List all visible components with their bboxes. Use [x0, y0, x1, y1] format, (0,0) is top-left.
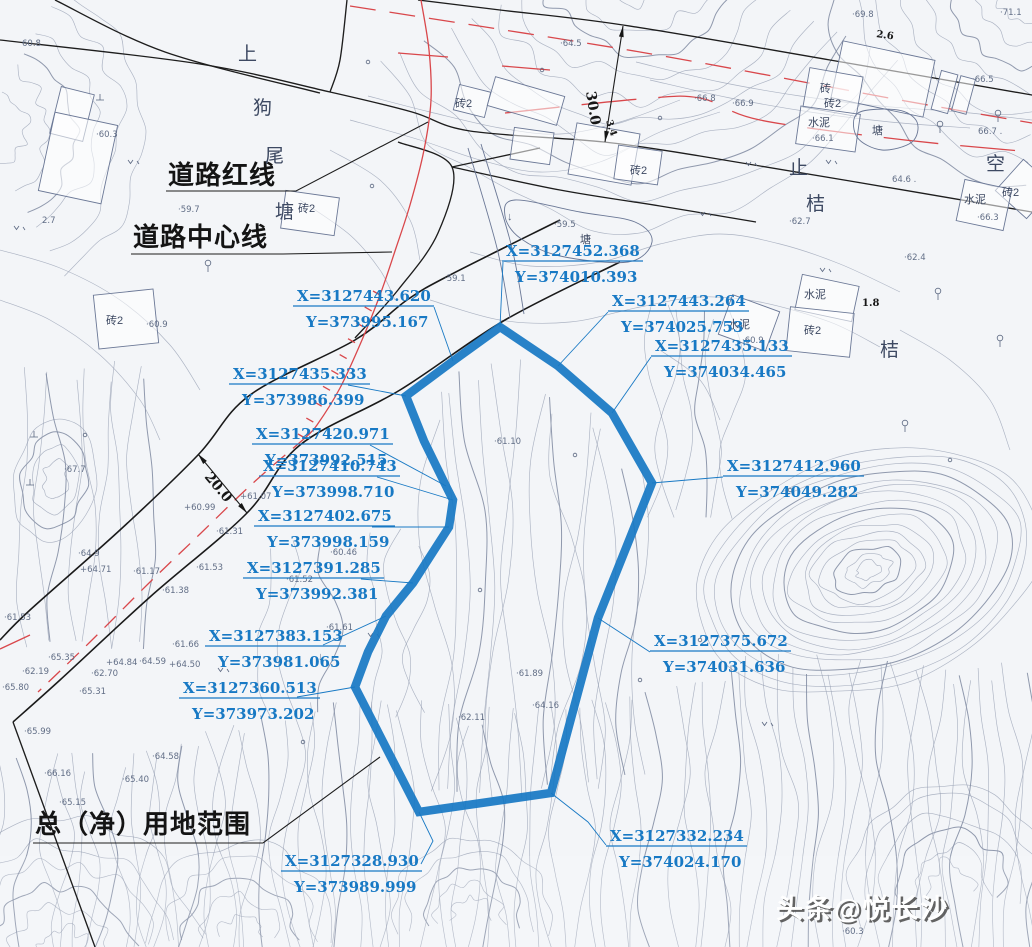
- spot-elevation: +64.84: [106, 658, 137, 668]
- land-type-label: 桔: [806, 193, 825, 215]
- spot-elevation: 2.7: [42, 216, 56, 226]
- land-parcel-boundary: [355, 327, 652, 812]
- coordinate-y-value: Y=374031.636: [662, 658, 785, 676]
- spot-elevation: +64.71: [80, 565, 111, 575]
- place-name-char: 尾: [265, 146, 284, 167]
- spot-elevation: ·61.10: [494, 437, 521, 447]
- building-outline: [93, 289, 158, 349]
- contour-line: [98, 382, 111, 648]
- grass-icon: [14, 226, 25, 230]
- spot-elevation: ·66.16: [44, 769, 71, 779]
- place-name-char: 狗: [253, 97, 272, 119]
- contour-ring: [13, 419, 97, 542]
- spot-elevation: ·61.38: [162, 586, 189, 596]
- coordinate-x-value: X=3127328.930: [285, 852, 419, 870]
- tree-icon: [997, 335, 1003, 341]
- spot-elevation: ·66.9: [732, 99, 754, 109]
- spot-elevation: ·61.66: [172, 640, 199, 650]
- grass-icon: [762, 722, 773, 726]
- dimension-arrow: [619, 26, 625, 38]
- feature-label: 砖2: [106, 313, 123, 327]
- coordinate-leader-line: [434, 307, 453, 361]
- parcel-boundary-polygon: [355, 327, 652, 812]
- land-type-label: 空: [986, 153, 1005, 175]
- coordinate-x-value: X=3127443.264: [612, 292, 746, 310]
- coordinate-x-value: X=3127360.513: [183, 679, 317, 697]
- tree-icon: [995, 110, 1001, 116]
- feature-label: 砖2: [298, 201, 315, 215]
- dimension-text: 1.8: [862, 298, 879, 309]
- tree-icon: [205, 260, 211, 266]
- road-boundary-line: [330, 0, 347, 92]
- spot-elevation: ·62.7: [789, 217, 811, 227]
- road-boundary-line: [355, 142, 454, 338]
- land-use-scope-label: 总（净）用地范围: [35, 809, 251, 839]
- place-name-char: 塘: [275, 201, 294, 223]
- contour-line: [46, 373, 66, 641]
- spot-elevation: ·61.89: [516, 669, 543, 679]
- coordinate-leader-line: [500, 262, 503, 327]
- map-symbols: ↓↓: [14, 60, 1003, 744]
- coordinate-y-value: Y=373992.381: [255, 585, 378, 603]
- slope-hatch-tick: [340, 355, 347, 359]
- coordinate-x-value: X=3127435.333: [233, 365, 367, 383]
- spot-elevation: ·62.70: [91, 669, 118, 679]
- contour-line: [660, 350, 720, 420]
- coordinate-x-value: X=3127435.133: [655, 337, 789, 355]
- path-outline: [468, 148, 510, 318]
- dimension-text: 2.6: [876, 29, 895, 42]
- spot-elevation: +61.07: [240, 492, 271, 502]
- coordinate-y-value: Y=374024.170: [618, 853, 741, 871]
- feature-label: 水泥: [804, 288, 826, 301]
- spot-elevation: ·66.1: [812, 134, 834, 144]
- spot-elevation: ·59.1: [444, 274, 466, 284]
- watermark-text: 头条@悦长沙: [776, 894, 949, 924]
- contour-line: [68, 380, 82, 641]
- survey-mark-icon: [96, 94, 104, 100]
- dimension-text: 30.0: [582, 90, 603, 126]
- spot-elevation: ·60.3: [96, 130, 118, 140]
- spot-elevation: ·65.40: [122, 775, 149, 785]
- contour-line: [965, 0, 1032, 46]
- spot-elevation: ·65.80: [2, 683, 29, 693]
- coordinate-y-value: Y=374025.753: [620, 318, 743, 336]
- coordinate-x-value: X=3127332.234: [610, 827, 744, 845]
- contour-line: [127, 366, 142, 642]
- coordinate-y-value: Y=373989.999: [293, 878, 416, 896]
- contour-line: [439, 392, 457, 791]
- dot-mark: [370, 184, 374, 188]
- spot-elevation: ·67.7: [64, 465, 86, 475]
- dot-mark: [478, 588, 482, 592]
- coordinate-x-value: X=3127375.672: [654, 632, 788, 650]
- slope-hatch-tick: [365, 307, 372, 311]
- topographic-site-plan: ↓↓ 30.020.03.41.82.6 60.8·60.3·59.72.7·6…: [0, 0, 1032, 947]
- grass-icon: [820, 268, 831, 272]
- watermark: 头条@悦长沙 头条@悦长沙: [776, 894, 952, 926]
- building-outline: [510, 127, 554, 164]
- land-type-label: 止: [789, 157, 808, 179]
- contour-line: [485, 364, 513, 799]
- down-arrow-icon: ↓: [507, 211, 513, 223]
- contour-line: [900, 330, 1010, 450]
- dot-mark: [366, 60, 370, 64]
- land-type-label: 桔: [880, 339, 899, 361]
- coordinate-leader-line: [551, 793, 606, 845]
- coordinate-x-value: X=3127420.971: [256, 425, 390, 443]
- coordinate-x-value: X=3127452.368: [506, 242, 640, 260]
- spot-elevation: ·66.3: [977, 213, 999, 223]
- contour-line: [111, 361, 121, 649]
- contour-line: [543, 397, 561, 785]
- spot-elevation: ·64.9: [78, 549, 100, 559]
- spot-elevation: ·62.11: [458, 713, 485, 723]
- feature-label: 砖2: [824, 96, 841, 110]
- feature-label: 砖2: [804, 323, 821, 337]
- contour-line: [82, 369, 96, 642]
- coordinate-y-value: Y=374034.465: [663, 363, 786, 381]
- coordinate-x-value: X=3127383.153: [209, 627, 343, 645]
- contour-line: [16, 367, 27, 647]
- pond-outline: [853, 109, 918, 150]
- spot-elevation: ·62.19: [22, 667, 49, 677]
- contour-line: [143, 379, 155, 649]
- spot-elevation: ·66.8: [694, 94, 716, 104]
- contour-ring: [856, 559, 882, 580]
- coordinate-y-value: Y=373998.710: [271, 483, 394, 501]
- coordinate-x-value: X=3127402.675: [258, 507, 392, 525]
- road-center-line-leader: [131, 252, 392, 254]
- spot-elevation: 64.6 .: [892, 175, 916, 185]
- coordinate-leader-line: [598, 618, 650, 652]
- spot-elevation: ·64.5: [560, 39, 582, 49]
- feature-label: 砖: [820, 81, 831, 95]
- tree-icon: [902, 420, 908, 426]
- buildings: [38, 41, 1032, 357]
- place-name-char: 上: [238, 43, 257, 65]
- building-outline: [38, 112, 117, 204]
- coordinate-y-value: Y=373998.159: [266, 533, 389, 551]
- coordinate-y-value: Y=373981.065: [217, 653, 340, 671]
- spot-elevation: ·64.16: [532, 701, 559, 711]
- contour-ring: [33, 445, 80, 515]
- spot-elevation: ·71.1: [1000, 8, 1022, 18]
- spot-elevation: ·59.7: [178, 205, 200, 215]
- spot-elevation: ·64.58: [152, 752, 179, 762]
- spot-elevation: +64.50: [169, 660, 200, 670]
- building-outline: [487, 77, 564, 126]
- spot-elevation: 66.7 .: [978, 127, 1002, 137]
- grass-icon: [826, 160, 837, 164]
- spot-elevation: ·65.15: [59, 798, 86, 808]
- spot-elevation: ·65.35: [48, 653, 75, 663]
- spot-elevation: ·59.5: [554, 220, 576, 230]
- feature-label: 水泥: [964, 193, 986, 206]
- dot-mark: [573, 453, 577, 457]
- contour-ring: [809, 531, 926, 607]
- building-outline: [796, 106, 861, 152]
- feature-label: 水泥: [808, 116, 830, 129]
- dot-mark: [948, 458, 952, 462]
- spot-elevation: ·62.4: [904, 253, 926, 263]
- tree-icon: [935, 288, 941, 294]
- contour-line: [0, 92, 31, 163]
- contour-line: [582, 0, 698, 9]
- contour-line: [529, 394, 555, 789]
- contour-line: [501, 360, 522, 799]
- coordinate-y-value: Y=374010.393: [514, 268, 637, 286]
- spot-elevation: ·60.3: [842, 927, 864, 937]
- spot-elevation: ·61.17: [133, 567, 160, 577]
- coordinate-leader-line: [361, 579, 413, 583]
- spot-elevation: ·61.31: [216, 527, 243, 537]
- road-red-line-label: 道路红线: [168, 160, 276, 190]
- contour-line: [479, 380, 495, 793]
- dot-mark: [658, 116, 662, 120]
- spot-elevation: ·65.99: [24, 727, 51, 737]
- coordinate-leader-line: [612, 357, 651, 413]
- coordinate-x-value: X=3127410.743: [263, 457, 397, 475]
- coordinate-y-value: Y=373995.167: [305, 313, 428, 331]
- coordinate-y-value: Y=373986.399: [241, 391, 364, 409]
- slope-hatch-tick: [323, 386, 330, 390]
- coordinate-y-value: Y=373973.202: [191, 705, 314, 723]
- road-center-line-label: 道路中心线: [133, 222, 268, 252]
- spot-elevation: ·69.8: [852, 10, 874, 20]
- coordinate-x-value: X=3127391.285: [247, 559, 381, 577]
- contour-line: [418, 420, 455, 791]
- feature-labels: 塘塘砖砖2砖2砖2砖2砖2砖2水泥水泥水泥水泥砖2: [106, 81, 1019, 337]
- coordinate-x-value: X=3127412.960: [727, 457, 861, 475]
- spot-elevation: ·61.53: [196, 563, 223, 573]
- spot-elevation: ·61.53: [4, 613, 31, 623]
- map-stage: ↓↓ 30.020.03.41.82.6 60.8·60.3·59.72.7·6…: [0, 0, 1032, 947]
- feature-label: 砖2: [1002, 185, 1019, 199]
- dimension-text: 20.0: [201, 469, 235, 506]
- contour-line: [569, 0, 714, 31]
- spot-elevation: 60.8: [22, 39, 41, 49]
- contour-line: [383, 529, 410, 718]
- feature-label: 砖2: [630, 163, 647, 177]
- slope-hatch-tick: [306, 418, 313, 422]
- dot-mark: [638, 678, 642, 682]
- feature-label: 塘: [872, 123, 883, 137]
- coordinate-y-value: Y=374049.282: [735, 483, 858, 501]
- spot-elevation: ·66.5: [972, 75, 994, 85]
- spot-elevation: ·64.59: [139, 657, 166, 667]
- feature-label: 砖2: [455, 96, 472, 110]
- spot-elevation: +60.99: [184, 503, 215, 513]
- spot-elevation: ·60.9: [146, 320, 168, 330]
- spot-elevation: ·65.31: [79, 687, 106, 697]
- coordinate-x-value: X=3127443.620: [297, 287, 431, 305]
